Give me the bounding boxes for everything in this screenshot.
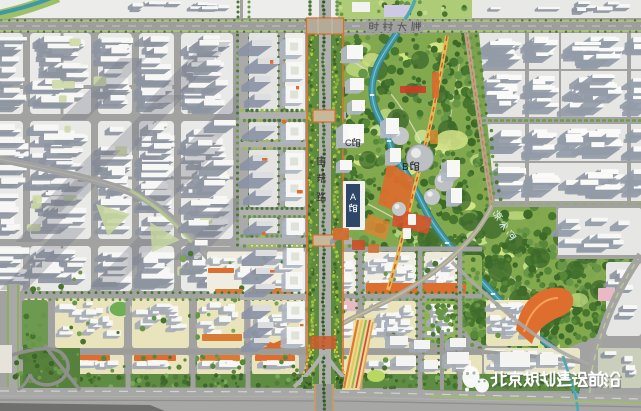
svg-text:A: A	[350, 192, 356, 202]
svg-text:B: B	[402, 162, 409, 173]
svg-text:C: C	[345, 138, 352, 148]
